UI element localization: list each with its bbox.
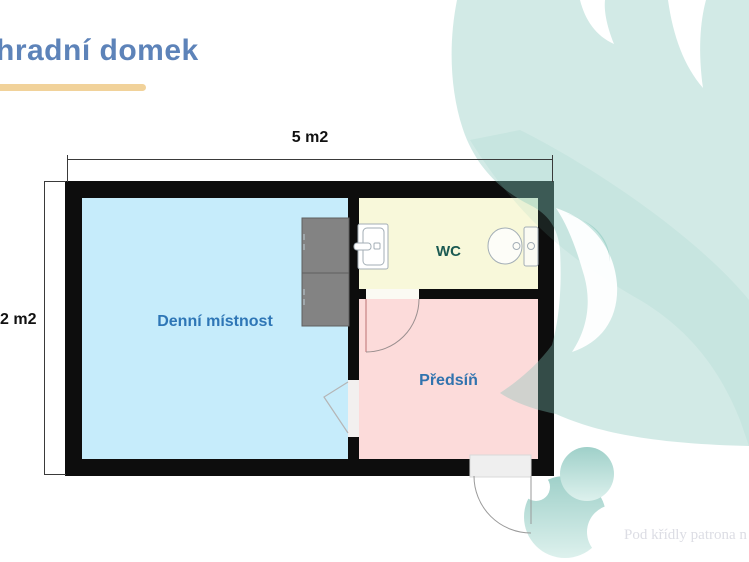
dimension-label-height: 2 m2 xyxy=(0,311,36,329)
watermark-text: Pod křídly patrona n xyxy=(624,527,749,544)
room-label-wc: WC xyxy=(359,243,538,260)
room-label-day: Denní místnost xyxy=(82,313,348,331)
page-title: hradní domek xyxy=(0,34,199,68)
dimension-label-width: 5 m2 xyxy=(67,129,553,147)
title-underline xyxy=(0,84,146,91)
room-label-hall: Předsíň xyxy=(359,372,538,390)
